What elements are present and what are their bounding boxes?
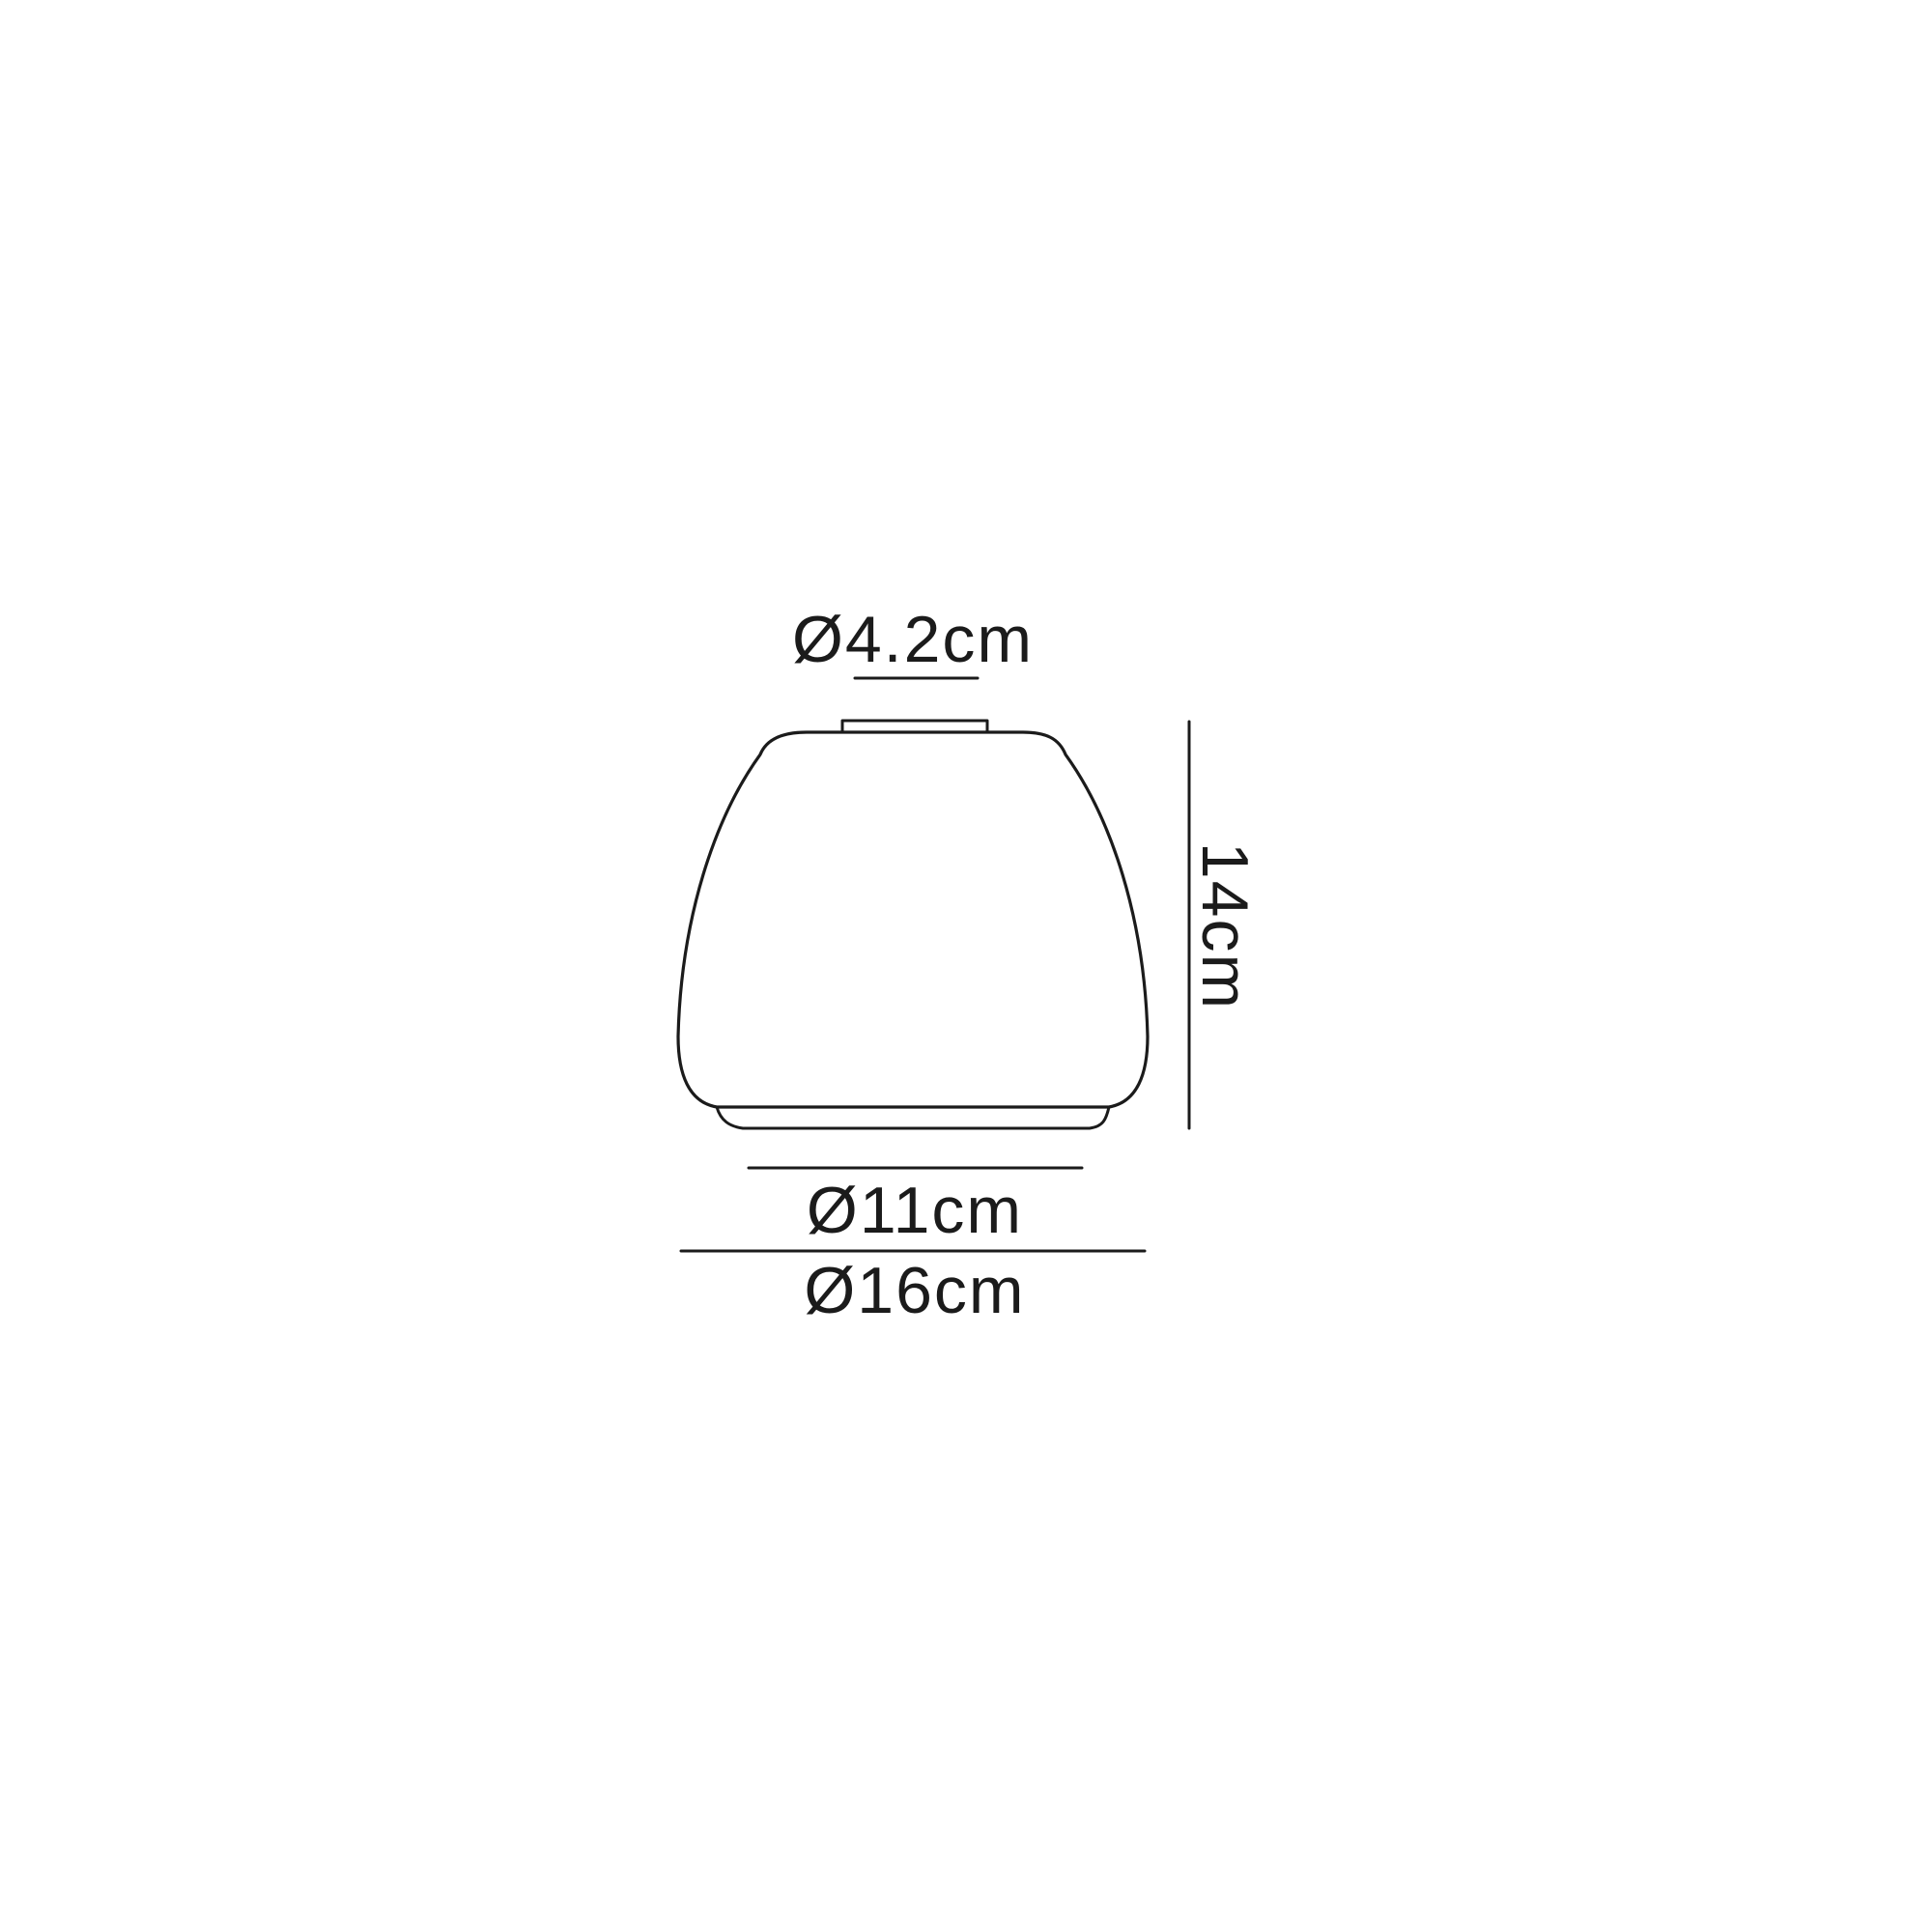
dimension-drawing-canvas: [0, 0, 1932, 1932]
label-top-diameter: Ø4.2cm: [792, 607, 1034, 672]
label-base-ring-diameter: Ø11cm: [807, 1178, 1023, 1243]
shade-body-outline: [678, 732, 1148, 1107]
lampshade-dimension-diagram: Ø4.2cm 14cm Ø11cm Ø16cm: [0, 0, 1932, 1932]
label-height: 14cm: [1192, 842, 1258, 1010]
shade-base-rim-outline: [717, 1107, 1109, 1128]
label-max-diameter: Ø16cm: [804, 1258, 1025, 1323]
shade-neck-outline: [842, 721, 987, 731]
